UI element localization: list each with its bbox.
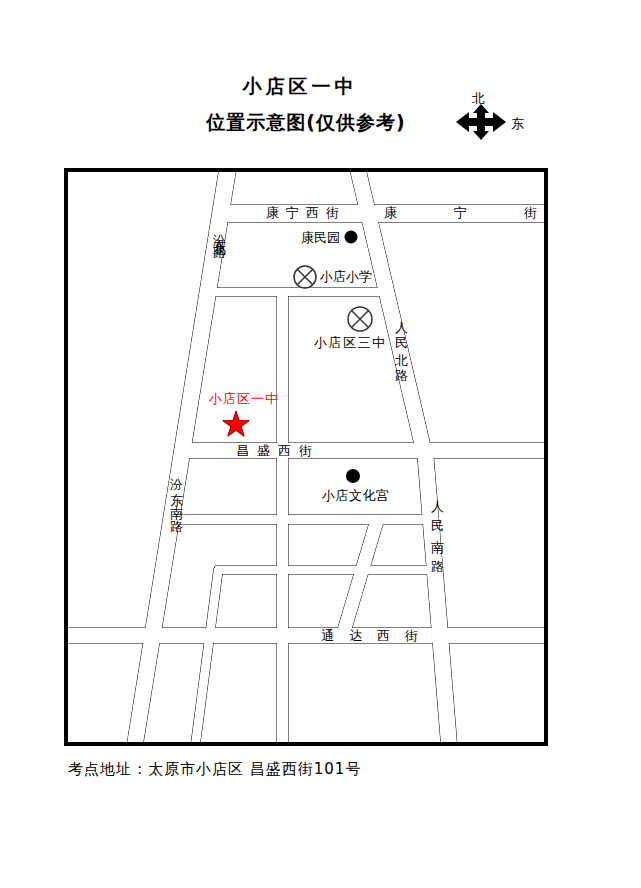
primary-school-circle-x-icon	[294, 266, 316, 288]
kangminyuan-dot-icon	[345, 231, 358, 244]
exam-site-address: 考点地址：太原市小店区 昌盛西街101号	[68, 760, 361, 779]
target-school-star-icon	[223, 411, 250, 436]
road-label-fendong-north: 汾东北路	[210, 224, 228, 240]
cultural-palace-dot-icon	[346, 469, 360, 483]
poi-label-kangminyuan: 康民园	[301, 231, 340, 245]
street-label-kangning-west: 康宁西街	[266, 206, 346, 220]
map-canvas	[0, 0, 641, 888]
road-label-renmin-south: 人民南路	[428, 490, 446, 570]
street-label-tongda-west: 通达西街	[321, 629, 433, 643]
street-label-kangning: 康宁街	[384, 206, 594, 220]
compass-rose-icon	[456, 104, 506, 140]
page: 小店区一中 位置示意图(仅供参考) 北 东	[0, 0, 641, 888]
no3-school-circle-x-icon	[348, 307, 372, 331]
poi-label-xiaodian-primary: 小店小学	[320, 270, 372, 284]
poi-label-cultural-palace: 小店文化宫	[322, 489, 390, 503]
road-label-fendong-south: 汾东南路	[167, 468, 185, 524]
road-label-renmin-north: 人民北路	[392, 311, 410, 375]
poi-label-xiaodian-no3: 小店区三中	[314, 336, 387, 350]
poi-label-xiaodian-no1-target: 小店区一中	[209, 392, 279, 406]
street-label-changsheng-west: 昌盛西街	[236, 444, 320, 458]
